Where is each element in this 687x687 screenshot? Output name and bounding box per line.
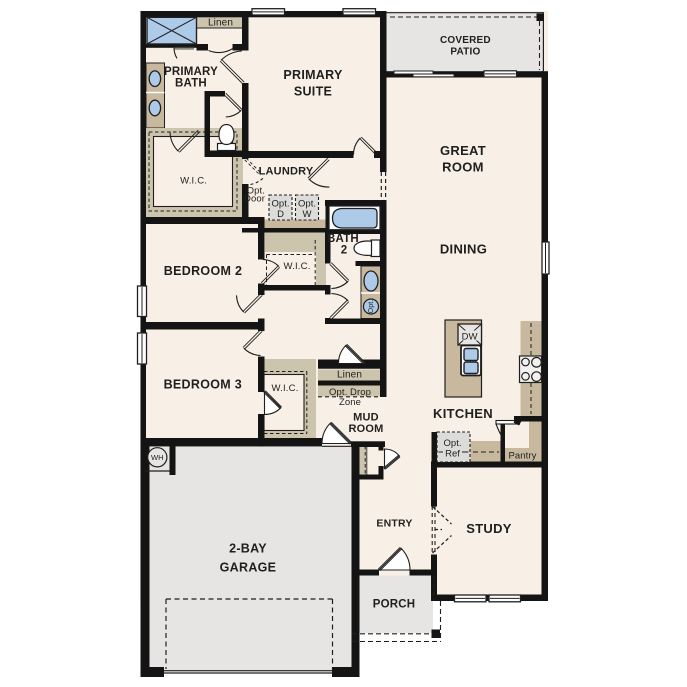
svg-text:2: 2: [341, 245, 348, 257]
svg-text:W: W: [303, 209, 312, 220]
svg-text:Ref: Ref: [445, 449, 460, 460]
svg-text:ENTRY: ENTRY: [376, 518, 412, 530]
svg-text:BATH: BATH: [175, 78, 207, 90]
svg-text:PORCH: PORCH: [373, 599, 416, 611]
svg-text:PRIMARY: PRIMARY: [164, 66, 218, 78]
svg-text:Opt.: Opt.: [298, 199, 316, 210]
svg-text:2-BAY: 2-BAY: [229, 542, 267, 556]
svg-text:Opt.: Opt.: [272, 199, 290, 210]
svg-text:Opt.: Opt.: [444, 438, 462, 449]
svg-text:PATIO: PATIO: [450, 46, 480, 57]
svg-text:ROOM: ROOM: [442, 159, 484, 174]
svg-text:BEDROOM 3: BEDROOM 3: [164, 378, 242, 392]
svg-text:D: D: [277, 209, 284, 220]
svg-text:Pantry: Pantry: [508, 451, 536, 462]
svg-text:W.I.C.: W.I.C.: [283, 261, 310, 272]
svg-text:Zone: Zone: [339, 397, 361, 408]
svg-text:KITCHEN: KITCHEN: [433, 406, 493, 421]
svg-text:MUD: MUD: [353, 412, 379, 424]
svg-text:DINING: DINING: [440, 242, 487, 257]
svg-text:Opt.: Opt.: [368, 300, 375, 314]
svg-text:DW: DW: [462, 332, 478, 343]
svg-text:W.I.C.: W.I.C.: [180, 176, 207, 187]
svg-text:GARAGE: GARAGE: [220, 561, 277, 575]
svg-text:Door: Door: [244, 194, 265, 205]
svg-text:ROOM: ROOM: [348, 423, 383, 435]
svg-text:W.I.C.: W.I.C.: [271, 383, 298, 394]
svg-text:SUITE: SUITE: [294, 85, 332, 99]
svg-text:COVERED: COVERED: [440, 35, 491, 46]
svg-text:Linen: Linen: [337, 370, 362, 381]
svg-text:Linen: Linen: [208, 18, 233, 29]
svg-text:WH: WH: [151, 453, 164, 462]
svg-text:LAUNDRY: LAUNDRY: [259, 166, 314, 178]
svg-text:BATH: BATH: [327, 233, 359, 245]
svg-text:PRIMARY: PRIMARY: [283, 68, 343, 82]
svg-text:STUDY: STUDY: [466, 521, 512, 536]
svg-text:BEDROOM 2: BEDROOM 2: [164, 264, 242, 278]
svg-text:GREAT: GREAT: [440, 143, 486, 158]
